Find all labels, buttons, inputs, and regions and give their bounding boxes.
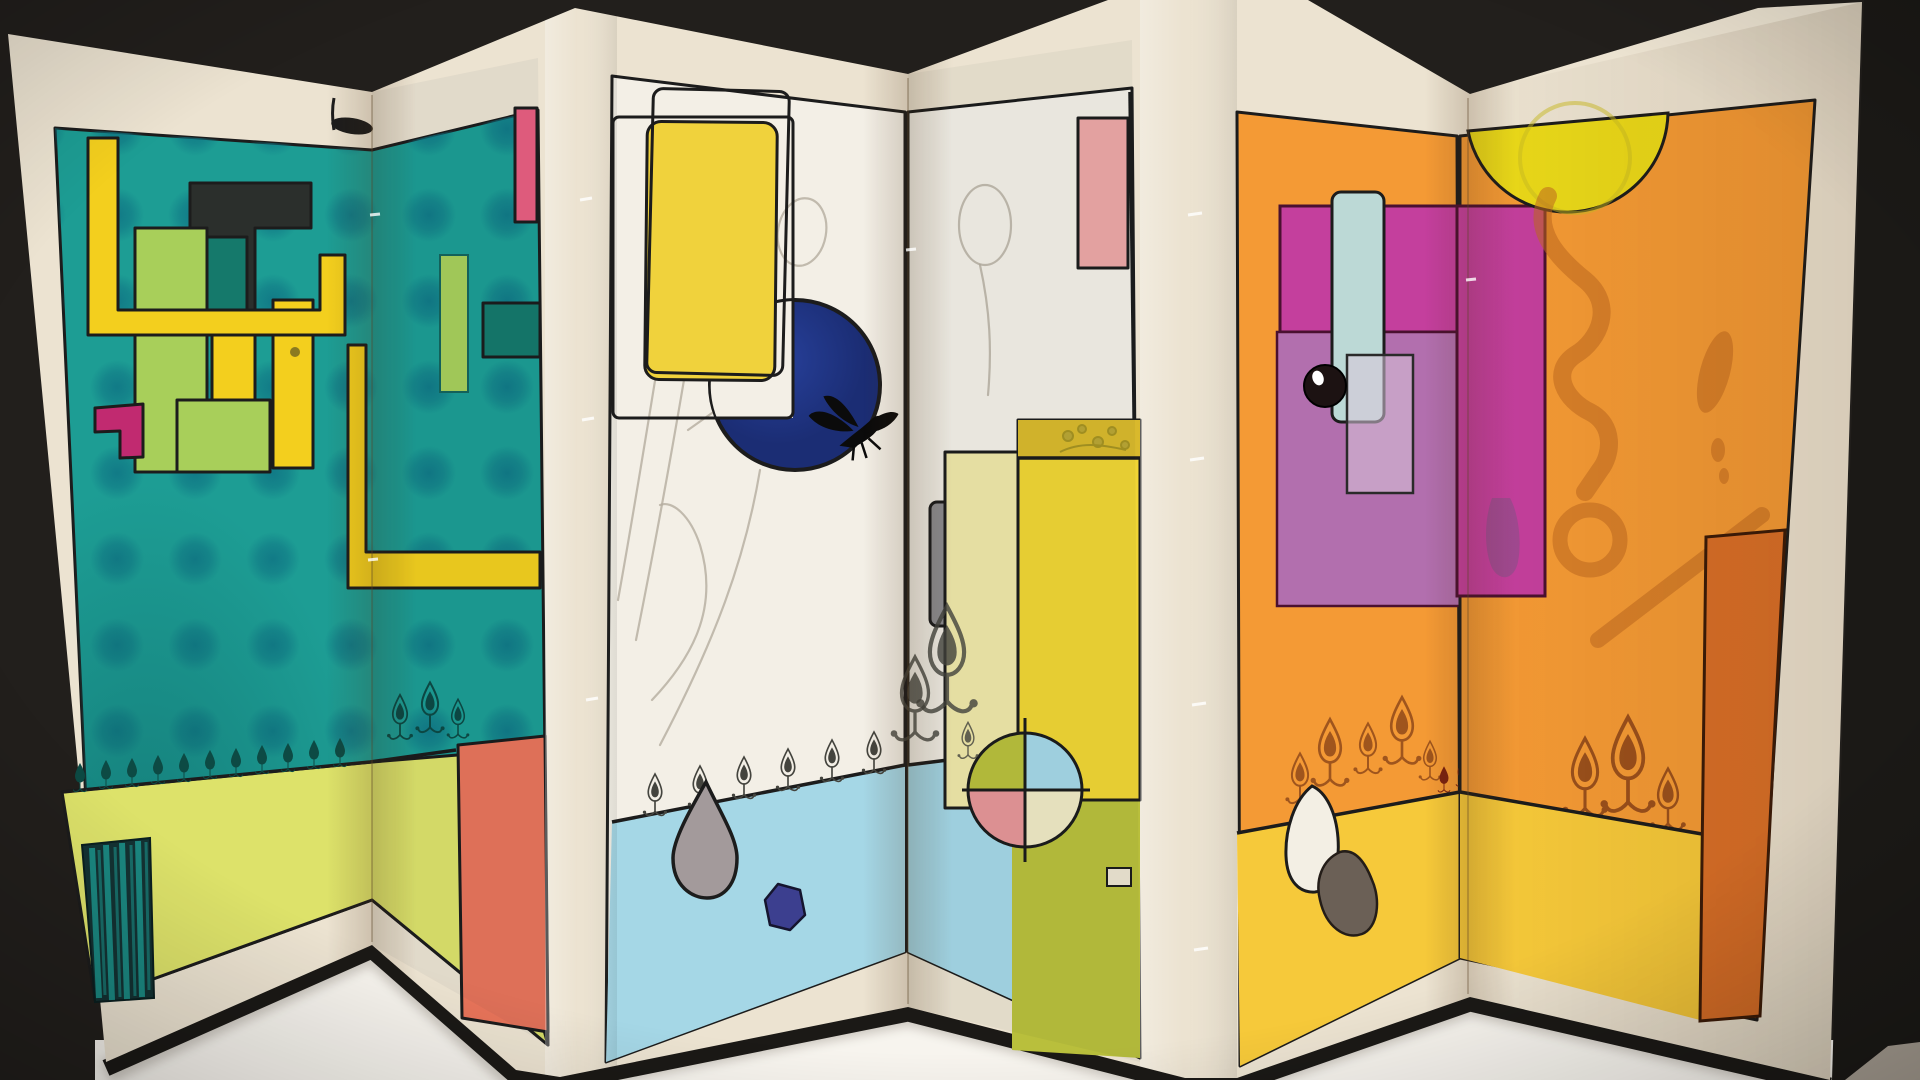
screenshot-root xyxy=(0,0,1920,1080)
photo-vignette xyxy=(0,0,1920,1080)
photo-recreation xyxy=(0,0,1920,1080)
